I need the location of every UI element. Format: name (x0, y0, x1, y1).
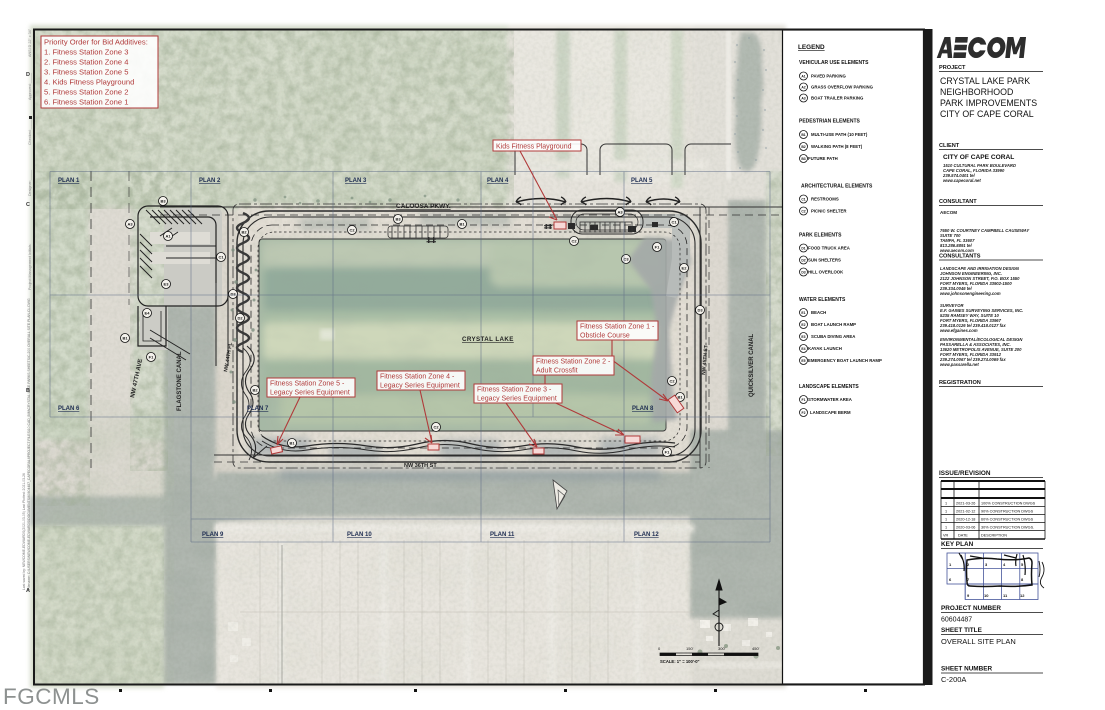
svg-text:PLAN 8: PLAN 8 (632, 406, 654, 412)
svg-text:B: B (26, 388, 30, 394)
svg-text:D2: D2 (801, 258, 805, 262)
svg-text:PLAN 12: PLAN 12 (634, 532, 659, 538)
svg-text:F1: F1 (655, 245, 660, 250)
svg-text:PLAN 4: PLAN 4 (487, 178, 509, 184)
svg-text:150': 150' (686, 646, 694, 651)
svg-text:VR: VR (943, 534, 949, 538)
svg-text:www.johnsonengineering.com: www.johnsonengineering.com (940, 291, 1001, 296)
svg-text:B1: B1 (289, 441, 295, 446)
svg-text:EMERGENCY BOAT LAUNCH RAMP: EMERGENCY BOAT LAUNCH RAMP (808, 358, 882, 363)
svg-text:PICNIC SHELTER: PICNIC SHELTER (811, 209, 847, 214)
svg-text:Fitness Station Zone 1 -: Fitness Station Zone 1 - (580, 324, 655, 331)
svg-text:Legacy Series Equipment: Legacy Series Equipment (380, 383, 460, 390)
svg-text:FUTURE PATH: FUTURE PATH (808, 156, 838, 161)
svg-text:SHEET TITLE: SHEET TITLE (941, 627, 983, 634)
svg-text:NEIGHBORHOOD: NEIGHBORHOOD (940, 87, 1013, 97)
svg-text:D3: D3 (697, 308, 703, 313)
svg-text:F2: F2 (802, 411, 806, 415)
svg-text:E2: E2 (801, 323, 805, 327)
svg-text:D3: D3 (801, 270, 805, 274)
svg-text:KEY PLAN: KEY PLAN (941, 541, 974, 548)
svg-text:E4: E4 (145, 311, 151, 316)
svg-text:1: 1 (945, 502, 947, 506)
svg-text:DESCRIPTION: DESCRIPTION (981, 534, 1007, 538)
svg-text:LEGEND: LEGEND (798, 44, 825, 51)
svg-text:2021-03-26: 2021-03-26 (956, 502, 975, 506)
svg-text:C1: C1 (801, 197, 805, 201)
svg-text:2020-12-18: 2020-12-18 (956, 518, 975, 522)
svg-text:PEDESTRIAN ELEMENTS: PEDESTRIAN ELEMENTS (799, 119, 861, 125)
svg-text:Last saved by: NEWCOME-EDWARDS: Last saved by: NEWCOME-EDWARDS(2021-03-0… (22, 473, 26, 590)
svg-text:SHEET NUMBER: SHEET NUMBER (941, 666, 993, 673)
svg-text:Legacy Series Equipment: Legacy Series Equipment (270, 390, 350, 397)
svg-text:Legacy Series Equipment: Legacy Series Equipment (477, 396, 557, 403)
svg-text:PLAN 9: PLAN 9 (202, 532, 224, 538)
svg-text:B2: B2 (252, 388, 258, 393)
svg-text:Kids Fitness Playground: Kids Fitness Playground (496, 144, 572, 151)
svg-text:F1: F1 (149, 355, 154, 360)
svg-text:PARK ELEMENTS: PARK ELEMENTS (799, 233, 842, 239)
svg-text:FLAGSTONE CANAL: FLAGSTONE CANAL (177, 351, 183, 411)
svg-text:5. Fitness Station Zone 2: 5. Fitness Station Zone 2 (44, 88, 128, 97)
svg-text:B2: B2 (801, 145, 805, 149)
svg-text:A3: A3 (617, 210, 623, 215)
svg-text:3. Fitness Station Zone 5: 3. Fitness Station Zone 5 (44, 68, 128, 77)
svg-text:C2: C2 (669, 379, 675, 384)
svg-text:Checked:_____: Checked:_____ (28, 118, 32, 145)
svg-text:E3: E3 (801, 335, 805, 339)
svg-text:CONSULTANTS: CONSULTANTS (939, 254, 981, 260)
svg-text:B2: B2 (241, 230, 247, 235)
svg-text:A2: A2 (801, 85, 805, 89)
svg-text:GRASS OVERFLOW PARKING: GRASS OVERFLOW PARKING (811, 85, 874, 90)
svg-text:300': 300' (718, 646, 726, 651)
svg-text:www.aecom.com: www.aecom.com (940, 248, 974, 253)
svg-text:KAYAK LAUNCH: KAYAK LAUNCH (808, 346, 842, 351)
svg-text:C2: C2 (433, 425, 439, 430)
svg-text:ANSI D 22" x 34": ANSI D 22" x 34" (28, 28, 32, 57)
svg-text:STORMWATER AREA: STORMWATER AREA (808, 397, 852, 402)
svg-text:CRYSTAL LAKE PARK: CRYSTAL LAKE PARK (940, 76, 1030, 86)
svg-text:D: D (26, 72, 30, 78)
svg-text:D1: D1 (801, 246, 805, 250)
svg-text:PLAN 2: PLAN 2 (199, 178, 221, 184)
svg-text:1: 1 (945, 510, 947, 514)
svg-text:PLAN 7: PLAN 7 (247, 406, 269, 412)
svg-text:450': 450' (752, 646, 760, 651)
svg-text:100% CONSTRUCTION DWGS: 100% CONSTRUCTION DWGS (981, 502, 1036, 506)
svg-text:E3: E3 (164, 282, 170, 287)
svg-text:2020-03-06: 2020-03-06 (956, 526, 975, 530)
svg-text:E2: E2 (682, 266, 688, 271)
svg-text:BOAT TRAILER PARKING: BOAT TRAILER PARKING (811, 96, 864, 101)
svg-text:BOAT LAUNCH RAMP: BOAT LAUNCH RAMP (811, 322, 856, 327)
svg-text:90% CONSTRUCTION DWGS: 90% CONSTRUCTION DWGS (981, 510, 1034, 514)
svg-text:LANDSCAPE BERM: LANDSCAPE BERM (810, 410, 851, 415)
svg-text:Priority Order for Bid Additiv: Priority Order for Bid Additives: (44, 38, 148, 47)
svg-text:CITY OF CAPE CORAL: CITY OF CAPE CORAL (940, 109, 1034, 119)
svg-text:LANDSCAPE ELEMENTS: LANDSCAPE ELEMENTS (799, 384, 859, 390)
svg-text:PLAN 1: PLAN 1 (58, 178, 80, 184)
svg-text:2021-02-12: 2021-02-12 (956, 510, 975, 514)
svg-text:B3: B3 (801, 157, 805, 161)
svg-text:SCALE: 1" = 100'-0": SCALE: 1" = 100'-0" (660, 659, 700, 664)
svg-text:B1: B1 (677, 395, 683, 400)
svg-text:PROJECT NUMBER: PROJECT NUMBER (941, 605, 1001, 612)
svg-text:A3: A3 (127, 222, 133, 227)
svg-text:CRYSTAL LAKE: CRYSTAL LAKE (462, 336, 514, 343)
svg-text:C: C (26, 202, 30, 208)
svg-text:10: 10 (984, 593, 989, 598)
svg-text:DATE: DATE (958, 534, 968, 538)
svg-text:30% CONSTRUCTION DWGS.: 30% CONSTRUCTION DWGS. (981, 526, 1034, 530)
svg-text:CONSULTANT: CONSULTANT (939, 199, 977, 205)
svg-text:60% CONSTRUCTION DWGS: 60% CONSTRUCTION DWGS (981, 518, 1034, 522)
svg-text:B3: B3 (160, 199, 166, 204)
svg-text:REGISTRATION: REGISTRATION (939, 380, 981, 386)
svg-text:RESTROOMS: RESTROOMS (811, 197, 839, 202)
svg-text:CLIENT: CLIENT (939, 143, 960, 149)
svg-text:PLAN 6: PLAN 6 (58, 406, 80, 412)
svg-text:Obsticle Course: Obsticle Course (580, 333, 630, 340)
svg-text:HILL OVERLOOK: HILL OVERLOOK (808, 270, 844, 275)
svg-text:B1: B1 (801, 133, 805, 137)
svg-text:D3: D3 (230, 292, 236, 297)
svg-text:4. Kids Fitness Playground: 4. Kids Fitness Playground (44, 78, 134, 87)
svg-text:D2: D2 (237, 316, 243, 321)
svg-text:Designer:_____: Designer:_____ (28, 169, 32, 196)
svg-text:AECOM: AECOM (940, 210, 957, 215)
svg-text:A: A (26, 588, 30, 594)
svg-text:B3: B3 (395, 217, 401, 222)
svg-text:Fitness Station Zone 2 -: Fitness Station Zone 2 - (536, 359, 611, 366)
svg-text:CITY OF CAPE CORAL: CITY OF CAPE CORAL (943, 154, 1014, 161)
svg-text:E1: E1 (801, 311, 805, 315)
svg-text:PARK IMPROVEMENTS: PARK IMPROVEMENTS (940, 98, 1037, 108)
svg-text:E5: E5 (801, 359, 805, 363)
svg-text:A1: A1 (801, 74, 805, 78)
svg-text:VEHICULAR USE ELEMENTS: VEHICULAR USE ELEMENTS (799, 60, 869, 66)
svg-text:PLAN 11: PLAN 11 (490, 532, 515, 538)
svg-text:PLAN 5: PLAN 5 (631, 178, 653, 184)
svg-text:Filename: C:\USERS\NEWCOME-EDW: Filename: C:\USERS\NEWCOME-EDWARDS\DOCUM… (27, 298, 31, 590)
svg-text:Fitness Station Zone 4 -: Fitness Station Zone 4 - (380, 374, 455, 381)
svg-text:www.efgaines.com: www.efgaines.com (940, 328, 978, 333)
svg-text:MULTI-USE PATH (10 FEET): MULTI-USE PATH (10 FEET) (811, 132, 868, 137)
svg-text:WATER ELEMENTS: WATER ELEMENTS (799, 297, 846, 303)
svg-text:www.capecoral.net: www.capecoral.net (943, 178, 981, 183)
svg-text:QUICKSILVER CANAL: QUICKSILVER CANAL (749, 333, 755, 397)
svg-text:Fitness Station Zone 5 -: Fitness Station Zone 5 - (270, 381, 345, 388)
svg-text:PLAN 3: PLAN 3 (345, 178, 367, 184)
svg-text:WALKING PATH (8 FEET): WALKING PATH (8 FEET) (811, 144, 863, 149)
svg-text:ARCHITECTURAL ELEMENTS: ARCHITECTURAL ELEMENTS (801, 184, 873, 190)
svg-text:C-200A: C-200A (941, 675, 966, 684)
svg-text:B1: B1 (122, 336, 128, 341)
svg-text:Project Management Initials:: Project Management Initials: (28, 243, 32, 290)
svg-text:F1: F1 (802, 398, 806, 402)
svg-text:PAVED PARKING: PAVED PARKING (811, 74, 847, 79)
svg-text:PROJECT: PROJECT (939, 65, 966, 71)
svg-text:OVERALL SITE PLAN: OVERALL SITE PLAN (941, 637, 1016, 646)
svg-text:FGCMLS: FGCMLS (3, 684, 100, 709)
svg-text:E4: E4 (801, 347, 805, 351)
svg-text:1. Fitness Station Zone 3: 1. Fitness Station Zone 3 (44, 48, 128, 57)
svg-text:ISSUE/REVISION: ISSUE/REVISION (939, 470, 991, 477)
svg-text:Adult Crossfit: Adult Crossfit (536, 368, 578, 375)
svg-text:C2: C2 (349, 228, 355, 233)
svg-text:SUN SHELTERS: SUN SHELTERS (808, 258, 841, 263)
svg-text:C2: C2 (801, 209, 805, 213)
svg-text:www.passarella.net: www.passarella.net (940, 362, 979, 367)
svg-text:60604487: 60604487 (941, 617, 972, 624)
svg-text:1: 1 (945, 526, 947, 530)
svg-text:2. Fitness Station Zone 4: 2. Fitness Station Zone 4 (44, 58, 128, 67)
svg-text:C2: C2 (571, 239, 577, 244)
svg-text:SCUBA DIVING AREA: SCUBA DIVING AREA (811, 334, 855, 339)
svg-text:FOOD TRUCK AREA: FOOD TRUCK AREA (808, 246, 850, 251)
svg-text:B1: B1 (459, 222, 465, 227)
svg-text:C1: C1 (671, 220, 677, 225)
svg-text:6. Fitness Station Zone 1: 6. Fitness Station Zone 1 (44, 98, 128, 107)
svg-text:CALOOSA PKWY.: CALOOSA PKWY. (396, 203, 451, 210)
svg-text:BEACH: BEACH (811, 310, 826, 315)
svg-text:1: 1 (945, 518, 947, 522)
svg-text:PLAN 10: PLAN 10 (347, 532, 372, 538)
svg-text:12: 12 (1020, 593, 1025, 598)
svg-text:A3: A3 (801, 96, 805, 100)
svg-text:NW 36TH ST: NW 36TH ST (404, 463, 437, 469)
svg-text:A1: A1 (165, 234, 171, 239)
svg-text:Fitness Station Zone 3 -: Fitness Station Zone 3 - (477, 387, 552, 394)
svg-text:F1: F1 (665, 450, 670, 455)
svg-text:C1: C1 (218, 255, 224, 260)
